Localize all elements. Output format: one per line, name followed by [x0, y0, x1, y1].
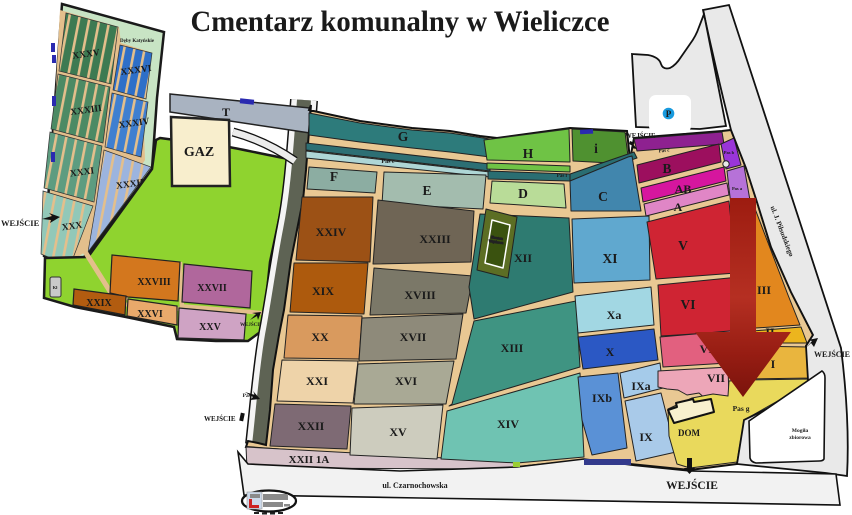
- svg-text:XXII: XXII: [298, 419, 325, 433]
- svg-text:Pas a: Pas a: [732, 186, 743, 191]
- svg-text:P: P: [666, 109, 672, 119]
- svg-text:Pas c: Pas c: [658, 148, 670, 154]
- svg-text:H: H: [523, 146, 534, 161]
- svg-text:WEJŚCIE: WEJŚCIE: [1, 218, 40, 228]
- svg-text:WEJŚCIE: WEJŚCIE: [666, 478, 718, 492]
- svg-text:XIX: XIX: [312, 284, 334, 298]
- svg-text:XI: XI: [602, 251, 617, 266]
- svg-text:DOM: DOM: [678, 428, 701, 438]
- svg-text:IX: IX: [639, 430, 653, 444]
- svg-text:XXI: XXI: [306, 374, 328, 388]
- svg-text:C: C: [598, 189, 608, 204]
- svg-text:XVI: XVI: [395, 374, 417, 388]
- svg-text:ul. Czarnochowska: ul. Czarnochowska: [382, 481, 447, 490]
- svg-text:XIV: XIV: [497, 417, 519, 431]
- svg-text:WEJŚCIE: WEJŚCIE: [814, 349, 850, 359]
- svg-text:XXIV: XXIV: [316, 225, 347, 239]
- svg-text:XVIII: XVIII: [404, 288, 436, 302]
- svg-text:T: T: [222, 105, 230, 119]
- svg-text:Pas e: Pas e: [381, 159, 395, 165]
- svg-text:XXIX: XXIX: [86, 298, 112, 309]
- svg-text:Xa: Xa: [607, 308, 622, 322]
- svg-text:i: i: [594, 141, 598, 156]
- svg-text:A: A: [674, 200, 683, 214]
- svg-text:AB: AB: [675, 182, 692, 196]
- svg-text:XXII 1A: XXII 1A: [289, 454, 330, 466]
- svg-text:X: X: [606, 345, 615, 359]
- svg-text:Pas g: Pas g: [733, 404, 750, 413]
- svg-text:G: G: [398, 129, 409, 144]
- svg-text:Dęby Katyńskie: Dęby Katyńskie: [120, 39, 155, 44]
- svg-text:V: V: [678, 238, 688, 253]
- svg-text:XV: XV: [389, 425, 407, 439]
- svg-text:Pas b: Pas b: [724, 150, 735, 155]
- svg-text:E: E: [422, 183, 431, 198]
- svg-text:VII: VII: [707, 371, 725, 385]
- svg-text:XIII: XIII: [501, 341, 524, 355]
- svg-text:Mogiła: Mogiła: [792, 428, 809, 434]
- svg-text:GAZ: GAZ: [184, 145, 214, 160]
- svg-text:XX: XX: [311, 330, 329, 344]
- svg-text:IXb: IXb: [592, 391, 612, 405]
- svg-text:WEJŚCIE: WEJŚCIE: [204, 415, 236, 423]
- svg-text:III: III: [757, 283, 771, 297]
- svg-text:XXVII: XXVII: [197, 283, 227, 294]
- svg-text:XVII: XVII: [400, 330, 427, 344]
- svg-text:XXVIII: XXVIII: [137, 277, 170, 288]
- svg-text:F: F: [330, 169, 338, 184]
- svg-text:WEJŚCIE: WEJŚCIE: [625, 132, 656, 140]
- svg-text:XII: XII: [514, 251, 532, 265]
- svg-text:D: D: [518, 186, 528, 201]
- svg-text:Cmentarz komunalny w Wieliczce: Cmentarz komunalny w Wieliczce: [191, 5, 610, 38]
- svg-text:IXa: IXa: [631, 379, 650, 393]
- svg-text:XXVI: XXVI: [137, 309, 163, 320]
- svg-text:zbiorowa: zbiorowa: [789, 435, 811, 441]
- svg-text:I: I: [771, 357, 776, 371]
- svg-text:B: B: [662, 161, 671, 176]
- svg-text:XXV: XXV: [199, 322, 221, 333]
- svg-text:XXIII: XXIII: [419, 232, 451, 246]
- svg-text:Pas f: Pas f: [557, 174, 568, 179]
- svg-text:VI: VI: [680, 297, 695, 312]
- svg-text:Kł: Kł: [53, 285, 59, 290]
